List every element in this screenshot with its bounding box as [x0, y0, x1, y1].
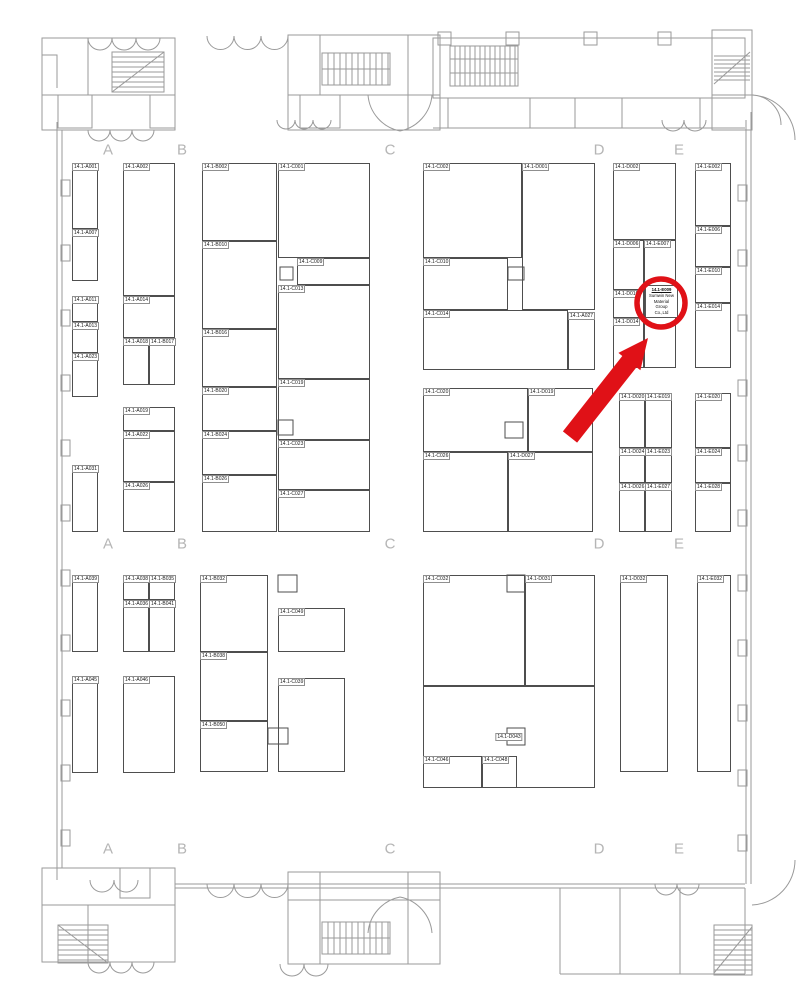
grid-letter-E: E	[674, 536, 684, 553]
grid-letter-D: D	[594, 841, 605, 858]
grid-letter-E: E	[674, 142, 684, 159]
callout-company-line: Co.,Ltd	[646, 310, 677, 316]
grid-letter-B: B	[177, 142, 187, 159]
grid-letter-D: D	[594, 142, 605, 159]
grid-letter-B: B	[177, 536, 187, 553]
grid-letter-C: C	[385, 142, 396, 159]
grid-letter-C: C	[385, 536, 396, 553]
grid-letter-E: E	[674, 841, 684, 858]
callout-company-line: Sumwin New	[646, 293, 677, 299]
grid-letter-C: C	[385, 841, 396, 858]
highlighted-booth-callout: 14.1-E009Sumwin NewMaterialGroupCo.,Ltd	[645, 285, 678, 318]
floor-plan: 14.1-A00114.1-A00714.1-A01114.1-A01314.1…	[0, 0, 800, 1001]
grid-letter-A: A	[103, 536, 113, 553]
grid-letter-B: B	[177, 841, 187, 858]
grid-letter-A: A	[103, 142, 113, 159]
letter-layer: ABCDEABCDEABCDE	[0, 0, 800, 1001]
grid-letter-D: D	[594, 536, 605, 553]
grid-letter-A: A	[103, 841, 113, 858]
